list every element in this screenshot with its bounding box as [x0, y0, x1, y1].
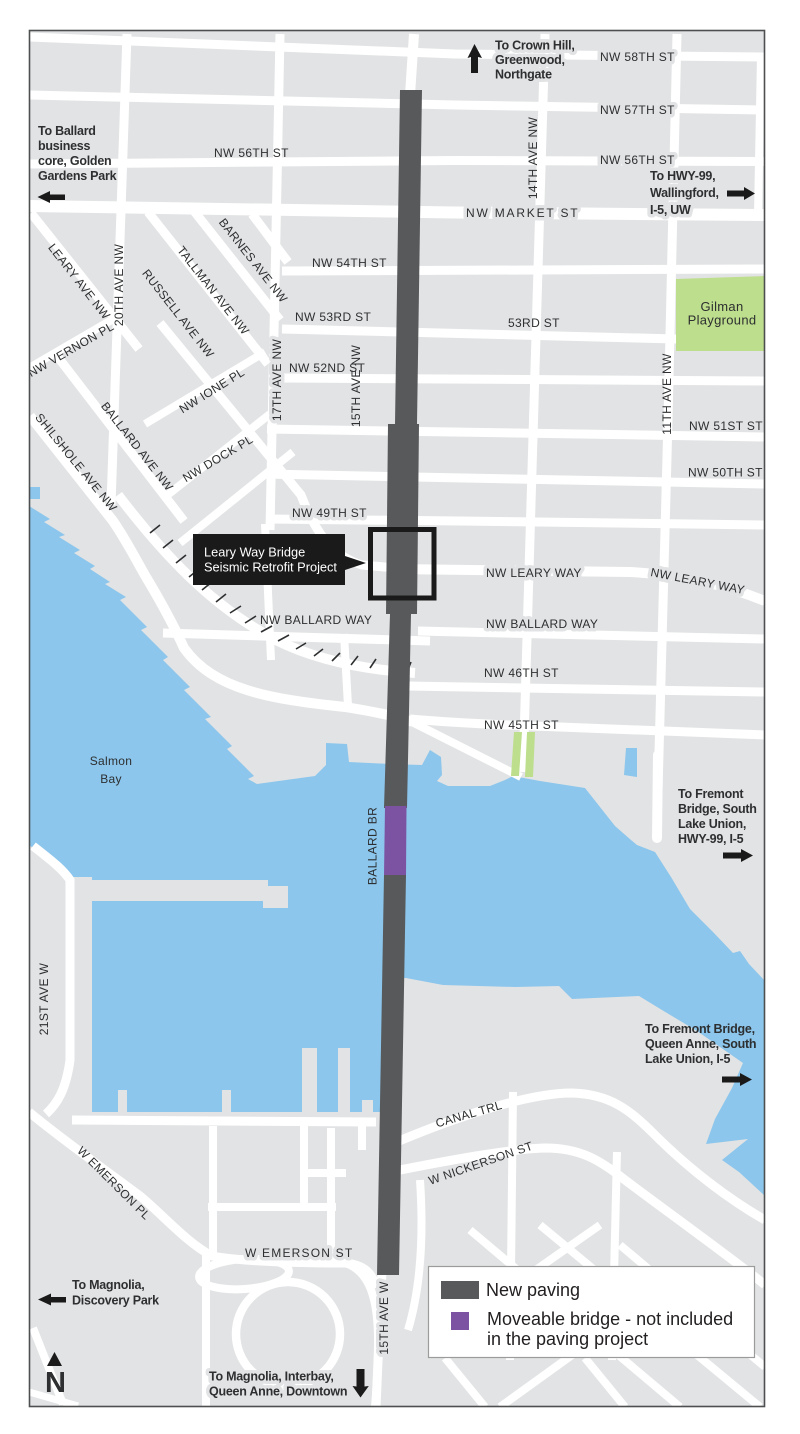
svg-text:Discovery Park: Discovery Park [72, 1294, 159, 1308]
svg-text:NW MARKET ST: NW MARKET ST [466, 206, 579, 220]
svg-text:NW BALLARD WAY: NW BALLARD WAY [260, 613, 372, 627]
svg-text:Northgate: Northgate [495, 68, 552, 82]
svg-text:To Fremont: To Fremont [678, 787, 744, 801]
svg-text:NW 54TH ST: NW 54TH ST [312, 256, 387, 270]
svg-text:NW 50TH ST: NW 50TH ST [688, 466, 763, 480]
svg-text:W EMERSON ST: W EMERSON ST [245, 1246, 353, 1260]
svg-text:Moveable bridge - not included: Moveable bridge - not included [487, 1309, 733, 1329]
svg-text:in the paving project: in the paving project [487, 1329, 648, 1349]
svg-text:Gardens Park: Gardens Park [38, 169, 117, 183]
svg-text:To HWY-99,: To HWY-99, [650, 169, 715, 183]
svg-text:NW BALLARD WAY: NW BALLARD WAY [486, 617, 598, 631]
svg-text:To Fremont Bridge,: To Fremont Bridge, [645, 1022, 755, 1036]
svg-text:Queen Anne, South: Queen Anne, South [645, 1037, 756, 1051]
svg-text:NW 51ST ST: NW 51ST ST [689, 419, 763, 433]
svg-text:53RD ST: 53RD ST [508, 316, 560, 330]
svg-text:NW 57TH ST: NW 57TH ST [600, 103, 675, 117]
svg-text:14TH AVE NW: 14TH AVE NW [526, 117, 540, 200]
svg-text:To Ballard: To Ballard [38, 124, 96, 138]
svg-text:Salmon: Salmon [90, 754, 133, 768]
svg-text:Bay: Bay [100, 772, 122, 786]
svg-text:N: N [45, 1367, 66, 1399]
svg-text:NW 56TH ST: NW 56TH ST [214, 146, 289, 160]
svg-text:To Magnolia,: To Magnolia, [72, 1278, 144, 1292]
svg-text:NW 49TH ST: NW 49TH ST [292, 506, 367, 520]
svg-text:17TH AVE NW: 17TH AVE NW [270, 339, 284, 422]
svg-text:Playground: Playground [688, 313, 757, 328]
svg-text:NW 56TH ST: NW 56TH ST [600, 153, 675, 167]
svg-text:BALLARD BR: BALLARD BR [366, 807, 380, 885]
svg-text:Lake Union, I-5: Lake Union, I-5 [645, 1052, 730, 1066]
svg-text:11TH AVE NW: 11TH AVE NW [660, 353, 674, 435]
svg-text:New paving: New paving [486, 1280, 580, 1300]
svg-text:15TH AVE W: 15TH AVE W [377, 1281, 391, 1355]
svg-text:NW 53RD ST: NW 53RD ST [295, 310, 371, 324]
svg-text:Seismic Retrofit Project: Seismic Retrofit Project [204, 560, 337, 575]
svg-text:I-5, UW: I-5, UW [650, 203, 691, 217]
svg-text:To Magnolia, Interbay,: To Magnolia, Interbay, [209, 1370, 334, 1384]
svg-text:business: business [38, 139, 90, 153]
svg-text:To Crown Hill,: To Crown Hill, [495, 39, 575, 53]
svg-text:Bridge, South: Bridge, South [678, 802, 757, 816]
svg-text:21ST AVE W: 21ST AVE W [37, 962, 51, 1035]
svg-text:Leary Way Bridge: Leary Way Bridge [204, 545, 305, 560]
svg-text:NW LEARY WAY: NW LEARY WAY [486, 566, 582, 580]
svg-text:20TH AVE NW: 20TH AVE NW [112, 244, 126, 327]
svg-text:15TH AVE NW: 15TH AVE NW [349, 345, 363, 428]
svg-text:Lake Union,: Lake Union, [678, 817, 746, 831]
svg-text:NW 45TH ST: NW 45TH ST [484, 718, 559, 732]
svg-text:HWY-99, I-5: HWY-99, I-5 [678, 832, 744, 846]
svg-text:NW 46TH ST: NW 46TH ST [484, 666, 559, 680]
svg-text:Wallingford,: Wallingford, [650, 186, 719, 200]
svg-text:core, Golden: core, Golden [38, 154, 111, 168]
svg-text:Queen Anne, Downtown: Queen Anne, Downtown [209, 1385, 347, 1399]
svg-text:Greenwood,: Greenwood, [495, 53, 565, 67]
svg-text:NW 58TH ST: NW 58TH ST [600, 50, 675, 64]
